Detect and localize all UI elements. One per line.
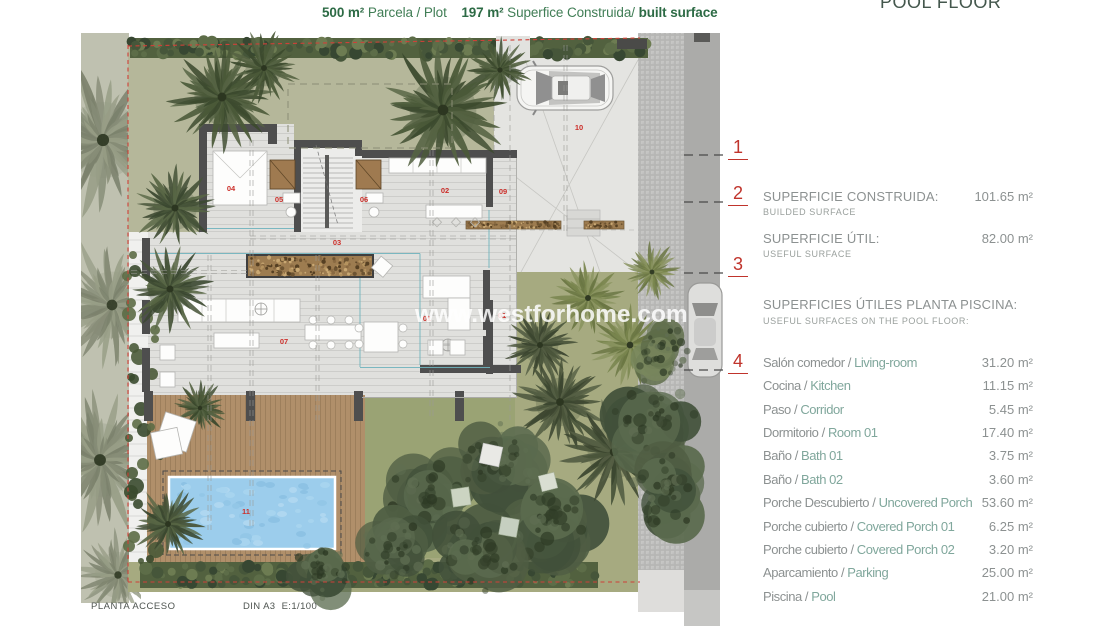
svg-text:www.westforhome.com: www.westforhome.com [414, 301, 688, 328]
svg-text:05: 05 [275, 195, 283, 204]
svg-text:07: 07 [280, 337, 288, 346]
svg-text:11: 11 [242, 507, 250, 516]
svg-text:10: 10 [575, 123, 583, 132]
svg-text:03: 03 [333, 238, 341, 247]
svg-text:06: 06 [360, 195, 368, 204]
svg-text:04: 04 [227, 184, 236, 193]
svg-text:02: 02 [441, 186, 449, 195]
svg-text:09: 09 [499, 187, 507, 196]
